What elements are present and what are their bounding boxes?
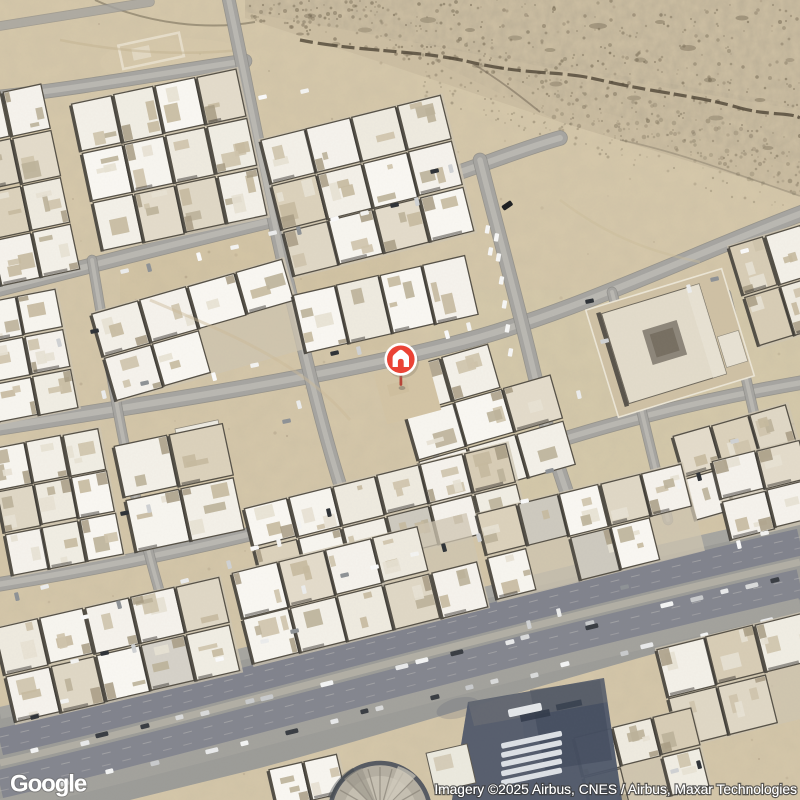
svg-text:Imagery ©2025 Airbus, CNES / A: Imagery ©2025 Airbus, CNES / Airbus, Max… <box>434 782 797 797</box>
svg-text:Google: Google <box>10 771 87 798</box>
